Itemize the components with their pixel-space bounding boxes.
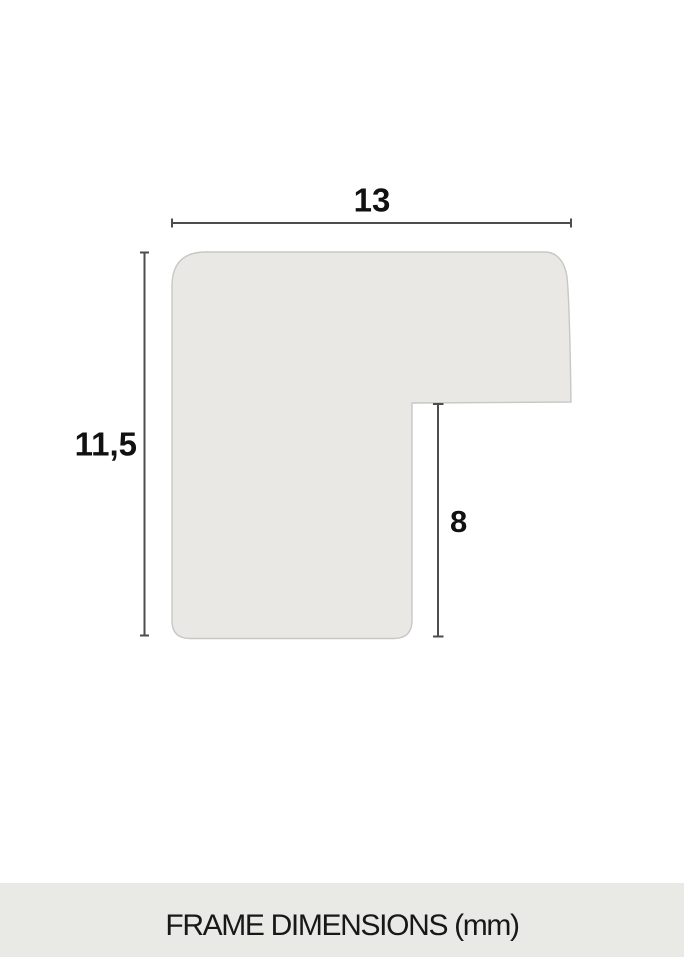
svg-text:8: 8 <box>450 504 467 539</box>
svg-text:13: 13 <box>354 182 391 219</box>
svg-text:11,5: 11,5 <box>75 426 137 463</box>
